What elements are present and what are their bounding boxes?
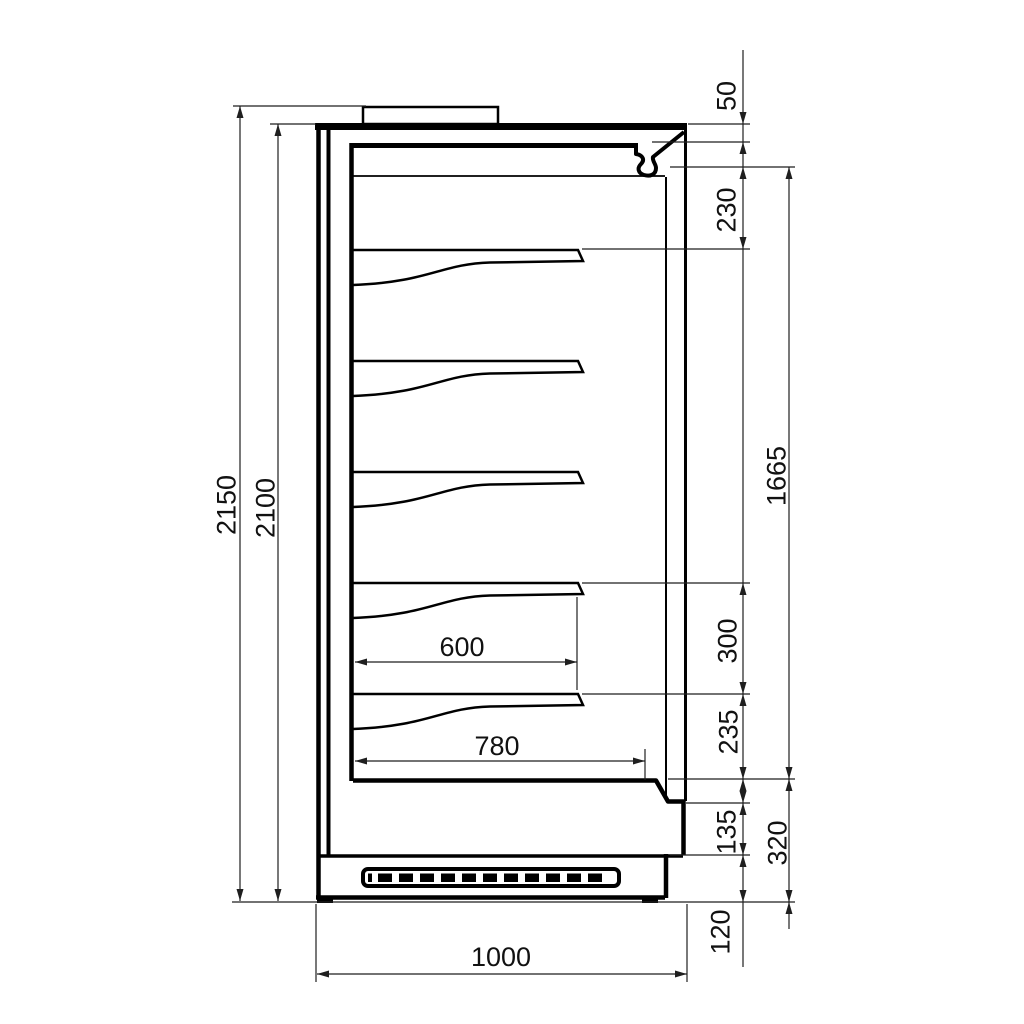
dim-label-top-panel: 50	[711, 81, 741, 111]
shelf-4	[353, 583, 583, 618]
dim-label-deck-depth: 780	[474, 731, 519, 761]
dim-label-overall-height: 2150	[211, 475, 241, 535]
cabinet-outline	[315, 107, 687, 903]
dimension-labels: 2150 2100 50 230 1665 300 235 135 320 12…	[211, 81, 792, 972]
shelf-2	[353, 361, 583, 396]
dimension-annotations: 2150 2100 50 230 1665 300 235 135 320 12…	[211, 50, 795, 982]
dim-label-shelf-depth: 600	[439, 632, 484, 662]
dim-label-display-opening: 1665	[761, 446, 791, 506]
cabinet-section-drawing: 2150 2100 50 230 1665 300 235 135 320 12…	[0, 0, 1024, 1024]
dimension-lines	[240, 50, 789, 974]
shelf-5	[353, 694, 583, 729]
dim-label-shelf-spacing: 300	[712, 618, 742, 663]
dim-label-body-height: 2100	[250, 478, 280, 538]
fascia-profile	[636, 132, 684, 176]
deck-and-front-step	[353, 781, 684, 856]
dim-label-plinth: 120	[705, 909, 735, 954]
grille-slots	[368, 874, 602, 883]
dim-label-canopy: 230	[711, 187, 741, 232]
ventilation-grille	[363, 869, 619, 886]
top-junction-box	[363, 107, 498, 124]
dim-label-base-section: 320	[762, 820, 792, 865]
dim-label-overall-depth: 1000	[471, 942, 531, 972]
dim-label-shelf-to-deck: 235	[713, 709, 743, 754]
dim-label-front-step: 135	[711, 809, 741, 854]
shelf-3	[353, 472, 583, 507]
shelf-1	[353, 250, 583, 285]
